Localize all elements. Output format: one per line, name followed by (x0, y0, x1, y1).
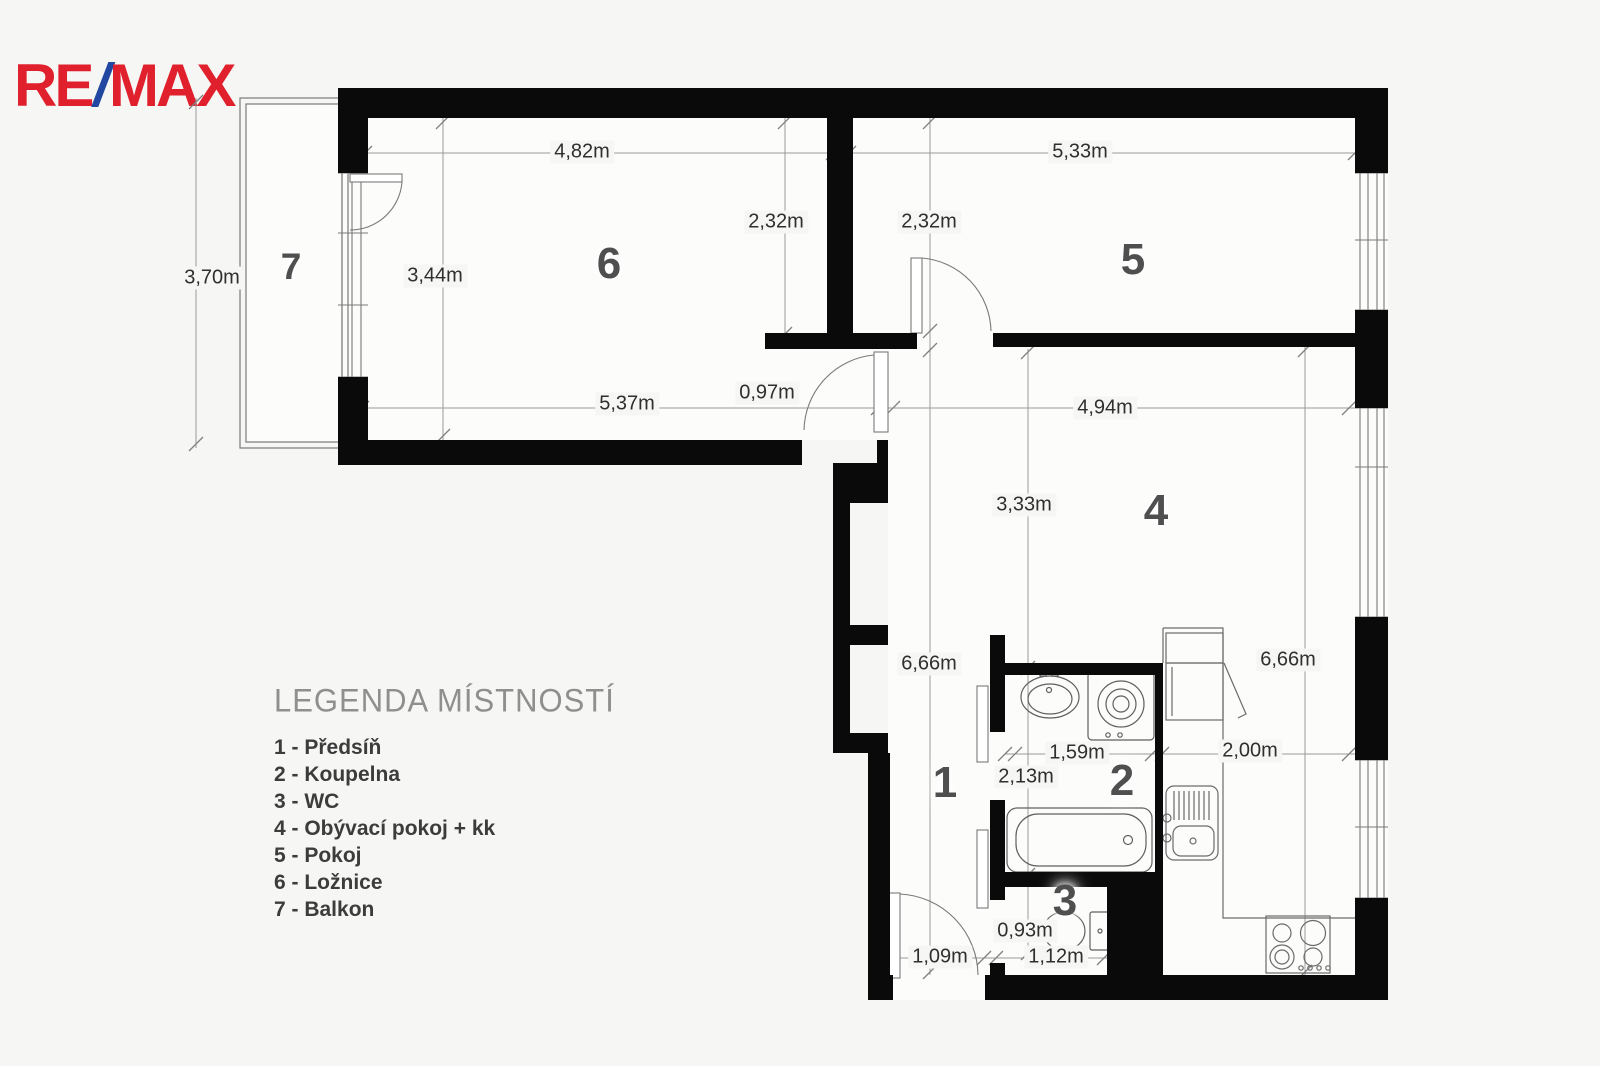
legend-items: 1 - Předsíň2 - Koupelna3 - WC4 - Obývací… (274, 734, 615, 923)
dimension-label: 0,97m (735, 382, 799, 405)
dimension-label: 1,59m (1045, 742, 1109, 765)
dimension-label: 3,33m (992, 494, 1056, 517)
room-number-label: 7 (281, 246, 302, 288)
dimension-label: 4,82m (550, 141, 614, 164)
dimension-label: 2,00m (1218, 740, 1282, 763)
floor-plan-page: RE/MAX (0, 0, 1600, 1066)
dimension-label: 1,12m (1024, 946, 1088, 969)
legend-item: 5 - Pokoj (274, 842, 615, 869)
legend-item: 1 - Předsíň (274, 734, 615, 761)
room-number-label: 5 (1121, 235, 1145, 285)
room-number-label: 6 (597, 239, 621, 289)
legend-item: 4 - Obývací pokoj + kk (274, 815, 615, 842)
door-wc-leaf (977, 830, 988, 908)
legend-item: 2 - Koupelna (274, 761, 615, 788)
dimension-label: 3,44m (403, 265, 467, 288)
dimension-label: 2,32m (897, 211, 961, 234)
legend-item: 3 - WC (274, 788, 615, 815)
dimension-label: 0,93m (993, 920, 1057, 943)
dimension-label: 5,37m (595, 393, 659, 416)
dimension-label: 5,33m (1048, 141, 1112, 164)
legend-item: 7 - Balkon (274, 896, 615, 923)
room-number-label: 3 (1053, 876, 1077, 926)
room-number-label: 1 (933, 758, 957, 808)
legend-title: LEGENDA MÍSTNOSTÍ (274, 682, 615, 720)
dimension-label: 3,70m (180, 267, 244, 290)
dimension-label: 6,66m (1256, 649, 1320, 672)
dimension-label: 6,66m (897, 653, 961, 676)
dimension-label: 2,13m (994, 766, 1058, 789)
dimension-label: 2,32m (744, 211, 808, 234)
legend-item: 6 - Ložnice (274, 869, 615, 896)
legend: LEGENDA MÍSTNOSTÍ 1 - Předsíň2 - Koupeln… (274, 682, 615, 923)
floor-plan-drawing (0, 0, 1600, 1066)
dimension-label: 4,94m (1073, 397, 1137, 420)
door-bathroom-leaf (977, 686, 988, 762)
room-number-label: 4 (1144, 486, 1168, 536)
dimension-label: 1,09m (908, 946, 972, 969)
room-number-label: 2 (1110, 756, 1134, 806)
